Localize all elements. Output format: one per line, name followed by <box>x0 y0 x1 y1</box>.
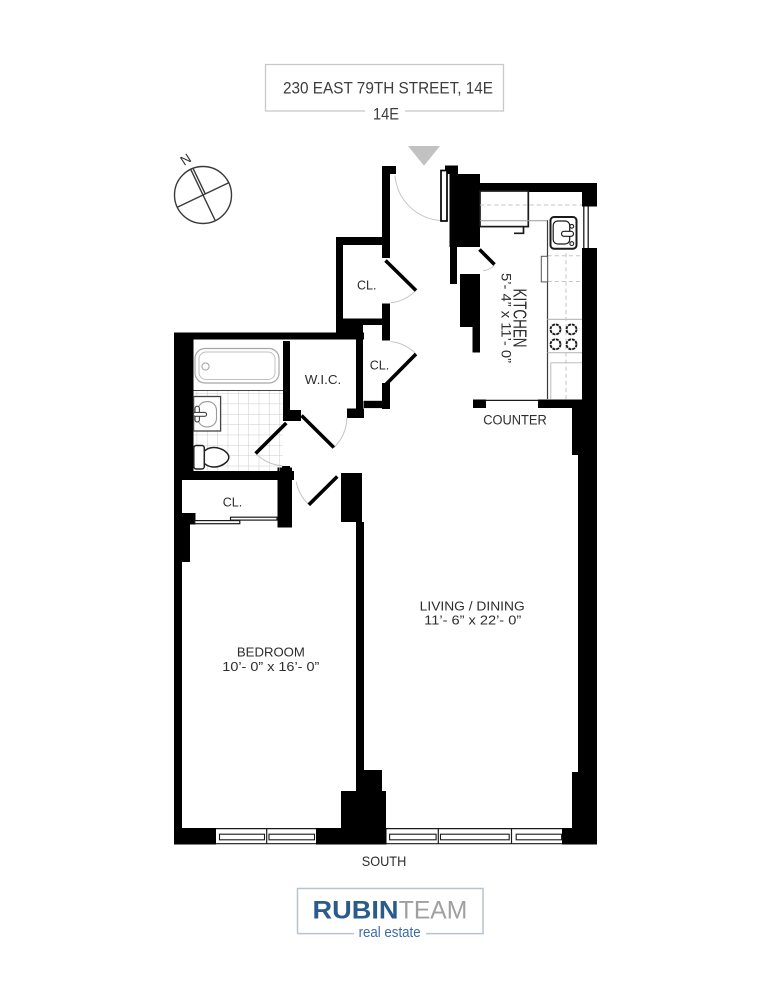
svg-text:SOUTH: SOUTH <box>362 854 407 869</box>
svg-text:BEDROOM: BEDROOM <box>237 644 305 659</box>
svg-text:10’- 0” x 16’- 0”: 10’- 0” x 16’- 0” <box>222 659 319 674</box>
svg-text:W.I.C.: W.I.C. <box>305 372 342 387</box>
svg-text:real estate: real estate <box>359 925 421 941</box>
svg-text:RUBIN: RUBIN <box>313 897 399 924</box>
svg-text:11’- 6” x 22’- 0”: 11’- 6” x 22’- 0” <box>424 613 521 628</box>
svg-text:LIVING / DINING: LIVING / DINING <box>420 599 525 614</box>
svg-text:5’- 4” x 11’- 0”: 5’- 4” x 11’- 0” <box>499 273 514 363</box>
svg-text:COUNTER: COUNTER <box>483 413 547 428</box>
svg-text:CL.: CL. <box>223 495 243 510</box>
svg-text:CL.: CL. <box>357 278 377 293</box>
svg-text:14E: 14E <box>373 106 399 124</box>
svg-text:230 EAST 79TH STREET, 14E: 230 EAST 79TH STREET, 14E <box>283 80 493 98</box>
svg-text:TEAM: TEAM <box>399 897 468 924</box>
svg-text:CL.: CL. <box>370 358 390 373</box>
